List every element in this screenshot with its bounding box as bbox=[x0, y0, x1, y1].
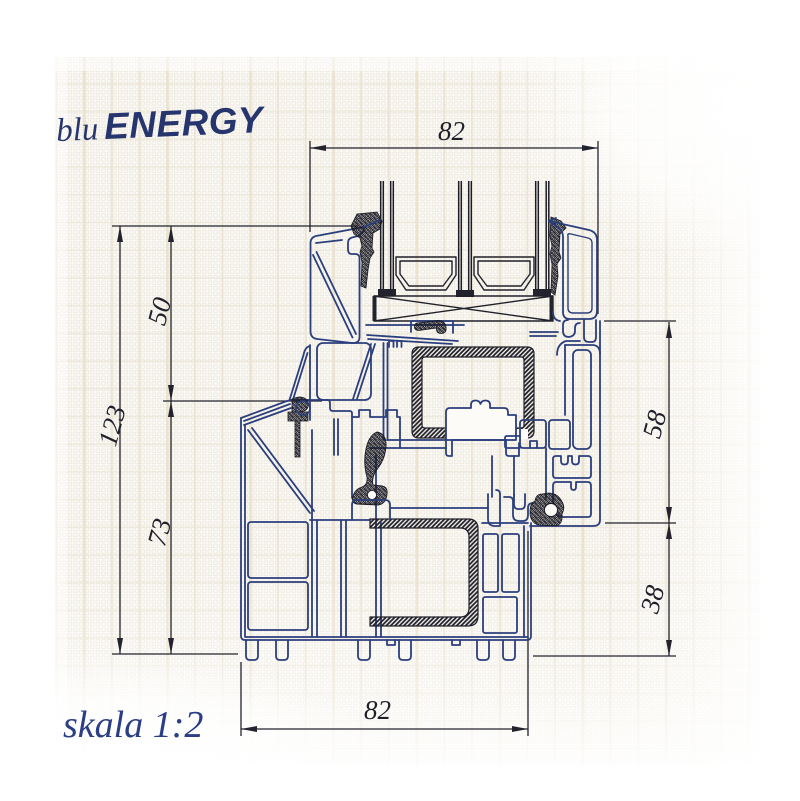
svg-text:blu: blu bbox=[55, 111, 99, 149]
svg-text:ENERGY: ENERGY bbox=[103, 99, 267, 147]
svg-text:skala 1:2: skala 1:2 bbox=[63, 704, 203, 746]
svg-text:82: 82 bbox=[438, 116, 465, 146]
svg-text:82: 82 bbox=[364, 695, 391, 725]
